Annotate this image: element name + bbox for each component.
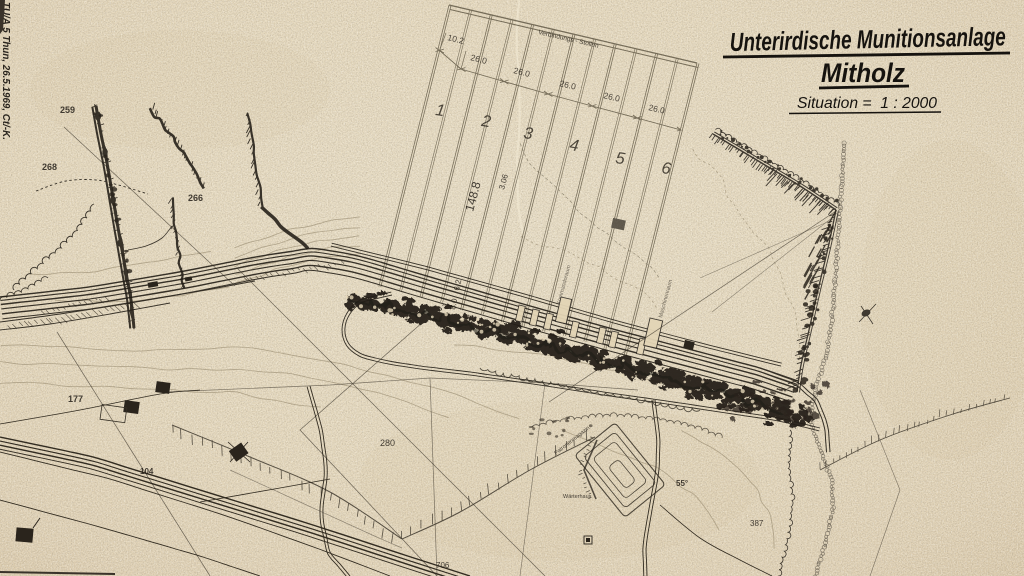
svg-text:Situation = 1 : 2000: Situation = 1 : 2000	[797, 95, 937, 112]
svg-text:Mitholz: Mitholz	[821, 58, 905, 88]
svg-text:266: 266	[188, 193, 203, 203]
svg-text:268: 268	[42, 162, 57, 172]
svg-text:259: 259	[60, 105, 75, 115]
svg-text:Wärterhaus: Wärterhaus	[563, 494, 592, 500]
svg-text:706: 706	[436, 561, 450, 570]
svg-text:Unterirdische Munitionsanlage: Unterirdische Munitionsanlage	[729, 21, 1006, 57]
svg-text:55°: 55°	[676, 479, 688, 488]
svg-text:387: 387	[750, 519, 764, 528]
svg-text:177: 177	[68, 394, 83, 404]
svg-text:104: 104	[140, 467, 154, 476]
svg-text:280: 280	[380, 438, 395, 448]
